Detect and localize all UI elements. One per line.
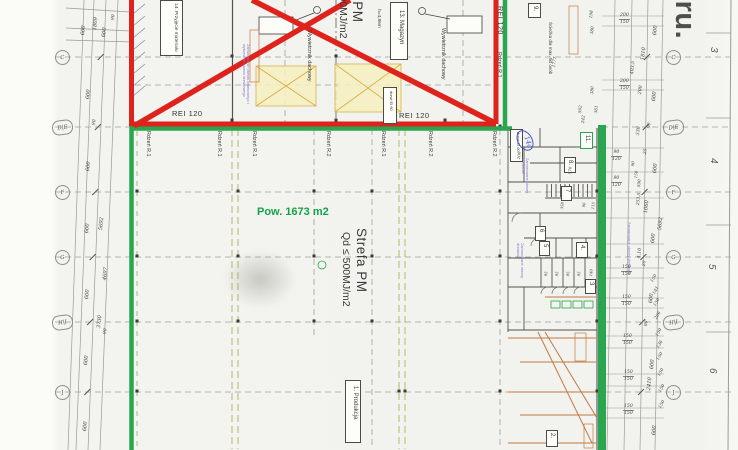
fire-rating-label-3: REI 120 [495,6,503,35]
zone-area-label: Pow. 1673 m2 [257,206,329,218]
dimension-number: 90 [644,321,650,327]
zone-name-top: Strefa PM [349,0,364,23]
dimension-pair: 150150 [621,265,632,277]
room-label-receiving-box: 14. Przyjęcie materiału [160,0,183,56]
zone-name-center: Strefa PM [353,228,368,293]
core-r2-c: Rdzeń R.2 [490,131,496,156]
sheet-title-fragment: eru. [668,0,700,39]
dimension-number: 600 [651,425,658,435]
highlighted-openings [256,64,401,112]
dimension-number: 600 [80,25,87,35]
core-r1-b: Rdzeń R.1 [215,131,221,156]
room-label-2-box: 2. [546,430,558,447]
dimension-number: 600 [652,25,659,35]
room-label-9-box: 9. [528,3,541,18]
dimension-number: 150 [621,272,632,278]
fire-rating-label-2: REI 120 [399,111,430,120]
room-label-2: 2. [548,433,555,438]
room-label-7-box: 7 [561,186,572,201]
dimension-number: 361 [593,105,599,113]
room-label-receiving: 14. Przyjęcie materiału [173,3,178,53]
note-bricked-2: Zamurowane otwory drzwiowe [515,243,524,295]
dimension-pair: 150150 [622,334,633,346]
dimension-number: 380 [589,26,595,34]
room-label-4-box: 4. [576,242,588,258]
core-r1-d: Rdzeń R.1 [379,131,385,156]
dimension-number: 150 [623,411,634,417]
dimension-number: 600 [83,355,90,365]
room-label-production-box: 1. Produkcja [345,380,361,443]
room-label-9: 9. [531,6,538,11]
room-label-6-box: 6 [535,226,546,241]
room-label-storage: 13. Magazyn [397,10,404,44]
dimension-number: 600 [82,421,89,431]
dimension-number: 600 [649,359,656,369]
door-ei60-box-1: drzwi EI 60 [383,87,397,124]
sheet-number-4: 4 [708,158,719,164]
sheet-number-6: 6 [707,368,718,374]
vent-label-1: Wywietrznik dachowy [306,30,312,85]
room-label-4: 4. [578,245,585,250]
scan-smudge [224,250,296,308]
dimension-number: 600 [101,27,108,37]
dimension-number: 200 [638,85,644,94]
stall-dim: 95 [554,271,559,276]
room-label-7: 7 [563,189,570,192]
dimension-number: 120 [611,183,622,189]
core-r2-a: Rdzeń R.2 [324,131,330,156]
dimension-number: 150 [619,86,630,92]
room-label-5-box: 5 [539,241,550,256]
room-label-11: 11. [583,135,590,143]
dimension-number: 25 [643,149,649,155]
modified-wall-hatch [133,4,145,96]
core-r2-b: Rdzeń R.2 [426,131,432,156]
core-r1-top: Rdzeń R.1 [495,52,501,77]
dimension-number: 90 [647,123,653,129]
room-label-production: 1. Produkcja [351,386,358,419]
dimension-number: 198 [588,10,594,18]
fire-rating-label-1: REI 120 [172,109,203,118]
zone-load-center: Qd ≤ 500MJ/m2 [339,232,351,307]
dimension-number: 90 [92,119,98,125]
dimension-number: 570 [567,167,573,175]
dimension-number: 150 [633,171,639,179]
dimension-number: 600 [651,91,658,101]
room-label-5: 5 [541,244,548,247]
room-label-6: 6 [537,229,544,232]
vent-label-2: Wywietrznik dachowy [440,28,446,83]
dimension-number: 600 [85,89,92,99]
dimension-number: 20 [642,261,648,267]
dimension-number: 200 [516,152,522,160]
dimension-number: 600 [650,233,657,243]
dimension-number: 380 [589,86,595,94]
dimension-number: 600 [648,293,655,303]
stall-dim: 140 [588,269,594,277]
core-r1-a: Rdzeń R.1 [144,131,150,156]
dimension-number: 120 [611,157,622,163]
room-label-storage-box: 13. Magazyn [390,2,408,60]
zone-load-top: Qd ≤ 500MJ/m2 [336,0,348,39]
dimension-number: 358 [559,202,565,210]
stall-dim: 95 [565,271,570,276]
stall-dim: 95 [543,271,548,276]
dimension-number: 150 [622,341,633,347]
dimension-pair: 150150 [621,295,632,307]
dimension-number: 90 [103,328,109,334]
note-bricked-1: Zamurowane otwory drzwiowe [520,158,529,210]
dimension-number: 600 [84,289,91,299]
dimension-number: 150 [619,20,630,26]
floor-plan-scan: eru. C D|E F G H|I J C D|E F G H|I J 3 4… [0,0,738,450]
sheet-number-5: 5 [706,264,717,270]
dimension-pair: 150150 [623,370,634,382]
dimension-number: 530 [636,126,642,135]
dimension-number: 600 [652,163,659,173]
dimension-number: 242 [580,115,586,123]
door-ei60-label-1: drzwi EI 60 [389,91,393,111]
sheet-number-3: 3 [708,47,719,53]
stall-dim: 95 [576,271,581,276]
dimension-number: 150 [623,377,634,383]
height-note: h=4,86m [376,9,381,28]
room-label-11-box: 11. [580,132,593,149]
core-r1-c: Rdzeń R.1 [250,131,256,156]
dimension-pair: 90120 [611,150,622,162]
dimension-pair: 150150 [623,404,634,416]
room-label-3-box: 3 [585,279,596,294]
dimension-number: 600 [85,161,92,171]
dimension-number: 592 [577,105,583,113]
dimension-number: 90 [111,14,117,20]
dimension-number: 150 [621,302,632,308]
room-label-3: 3 [587,282,594,285]
dimension-number: 115 [590,202,596,210]
dimension-pair: 200150 [619,13,630,25]
room-label-8: 8. [566,160,573,165]
dimension-number: 90 [630,161,636,167]
note-gate-bricking: Zamurowanie otworu bramowego i wykonanie… [241,44,250,112]
dimension-number: 96 [581,202,586,207]
dimension-pair: 90120 [611,176,622,188]
dimension-number: 590 [636,179,642,187]
dimension-pair: 200150 [619,79,630,91]
dimension-number: 600 [84,223,91,233]
